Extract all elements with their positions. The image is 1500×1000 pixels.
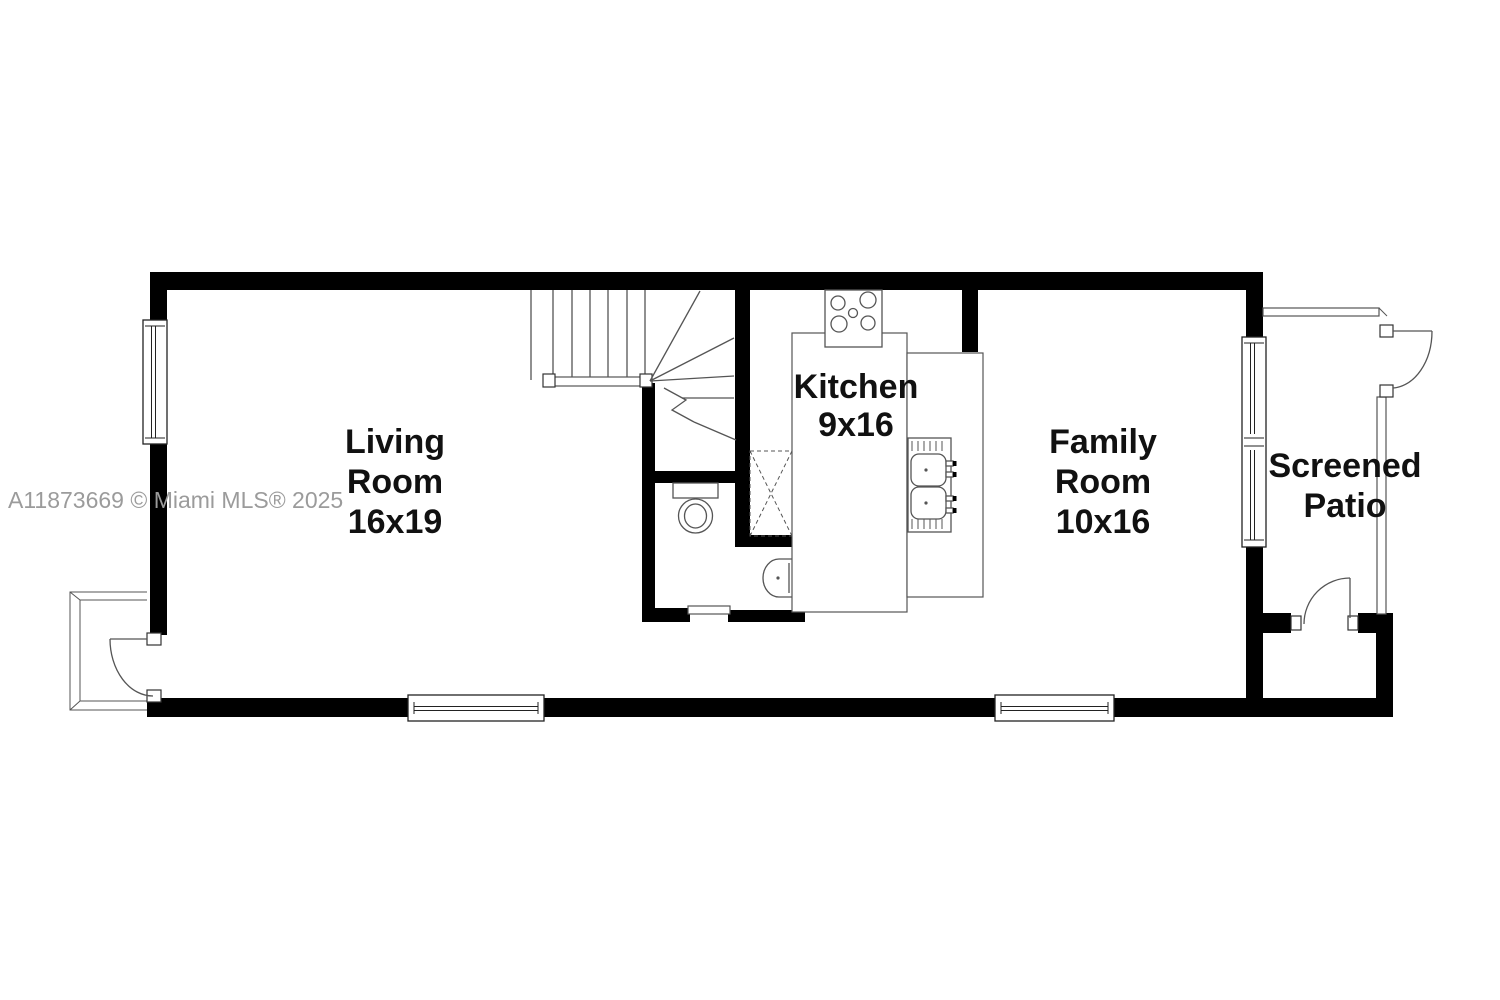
- floor-plan-page: Living Room 16x19 Kitchen 9x16 Family Ro…: [0, 0, 1500, 1000]
- floor-plan-canvas: Living Room 16x19 Kitchen 9x16 Family Ro…: [0, 0, 1500, 1000]
- window-icon-east: [1242, 337, 1266, 547]
- living-room-label: Living Room 16x19: [345, 423, 445, 541]
- bathroom-threshold: [688, 606, 730, 614]
- stove-icon: [825, 290, 882, 347]
- storage-room-walls: [1246, 613, 1393, 717]
- screened-patio-label-line1: Screened: [1268, 447, 1421, 485]
- living-room-label-line2: Room: [347, 463, 443, 501]
- window-icon-left: [143, 320, 167, 444]
- family-room-label-line2: Room: [1055, 463, 1151, 501]
- toilet-icon: [673, 483, 718, 533]
- front-door-swing-icon: [110, 633, 161, 702]
- entry-stoop: [70, 592, 147, 710]
- living-room-label-line1: Living: [345, 423, 445, 461]
- window-icon-bottom-right: [995, 695, 1114, 721]
- storage-door-swing-icon: [1291, 578, 1358, 630]
- family-room-label-line1: Family: [1049, 423, 1157, 461]
- patio-door-swing-icon: [1380, 325, 1432, 397]
- kitchen-label-line1: Kitchen: [794, 368, 919, 406]
- living-room-dimensions: 16x19: [348, 503, 443, 541]
- staircase-icon: [531, 290, 736, 440]
- screened-patio-label-line2: Patio: [1303, 487, 1386, 525]
- screened-patio-label: Screened Patio: [1268, 447, 1421, 525]
- double-sink-icon: [908, 438, 957, 532]
- watermark-text: A11873669 © Miami MLS® 2025: [8, 487, 343, 513]
- refrigerator-dashed-icon: [750, 451, 792, 536]
- window-icon-bottom-left: [408, 695, 544, 721]
- kitchen-dimensions: 9x16: [818, 406, 894, 444]
- family-room-dimensions: 10x16: [1056, 503, 1151, 541]
- family-room-label: Family Room 10x16: [1049, 423, 1157, 541]
